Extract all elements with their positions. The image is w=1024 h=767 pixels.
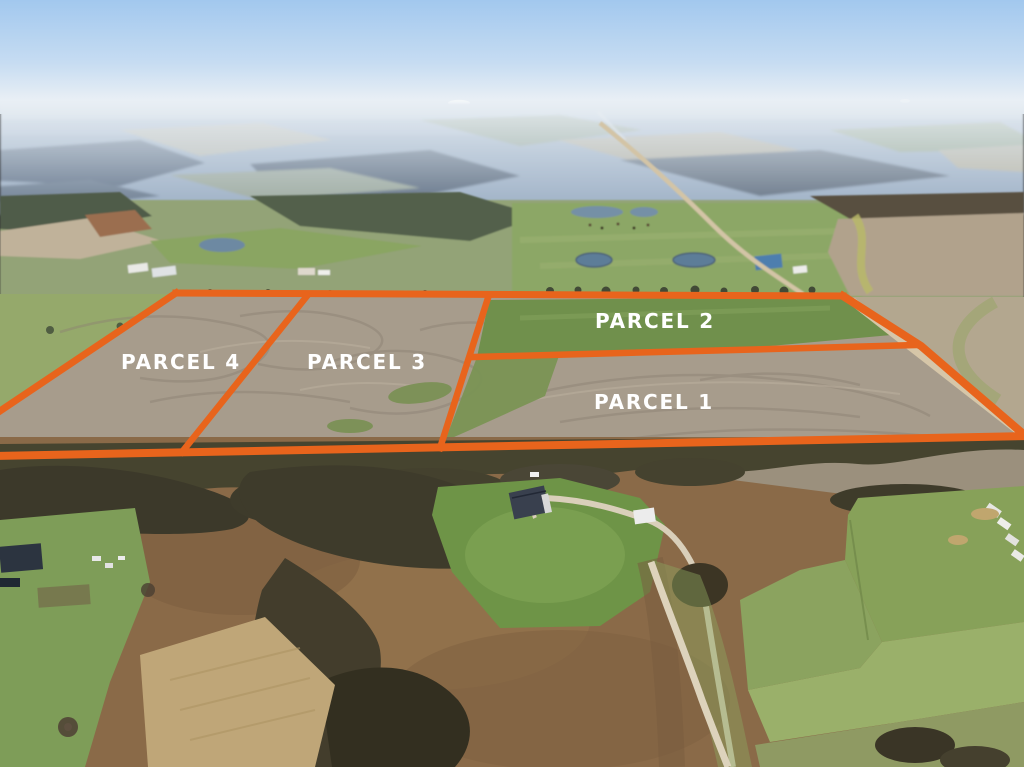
parked-car [530, 472, 539, 477]
grass-island [327, 419, 373, 433]
white-trailer [793, 265, 808, 273]
hay-patch [971, 508, 999, 520]
parcel-label-1: PARCEL 4 [121, 350, 241, 374]
parked-vehicle [0, 578, 20, 587]
foreground [0, 434, 1024, 767]
farm-building [298, 268, 315, 275]
lawn-highlight [465, 507, 625, 603]
neighbor-house-roof [0, 543, 43, 573]
green-pasture [512, 203, 862, 298]
parcel-label-4: PARCEL 1 [594, 390, 714, 414]
farm-building [318, 270, 330, 275]
pond [673, 253, 715, 267]
sky [0, 0, 1024, 114]
boundary-outer-top [176, 293, 843, 296]
sky-gradient [0, 0, 1024, 114]
parcel-label-3: PARCEL 2 [595, 309, 715, 333]
parcel-label-2: PARCEL 3 [307, 350, 427, 374]
pond [576, 253, 612, 267]
white-shed [633, 508, 656, 525]
pond [199, 238, 245, 252]
aerial-photo: PARCEL 4PARCEL 3PARCEL 2PARCEL 1 [0, 0, 1024, 767]
pond [571, 206, 623, 218]
smoke-plume-small [900, 99, 910, 103]
pasture-patch [37, 584, 90, 608]
pond [630, 207, 658, 217]
hay-patch [948, 535, 968, 545]
aerial-photo-canvas: PARCEL 4PARCEL 3PARCEL 2PARCEL 1 [0, 0, 1024, 767]
